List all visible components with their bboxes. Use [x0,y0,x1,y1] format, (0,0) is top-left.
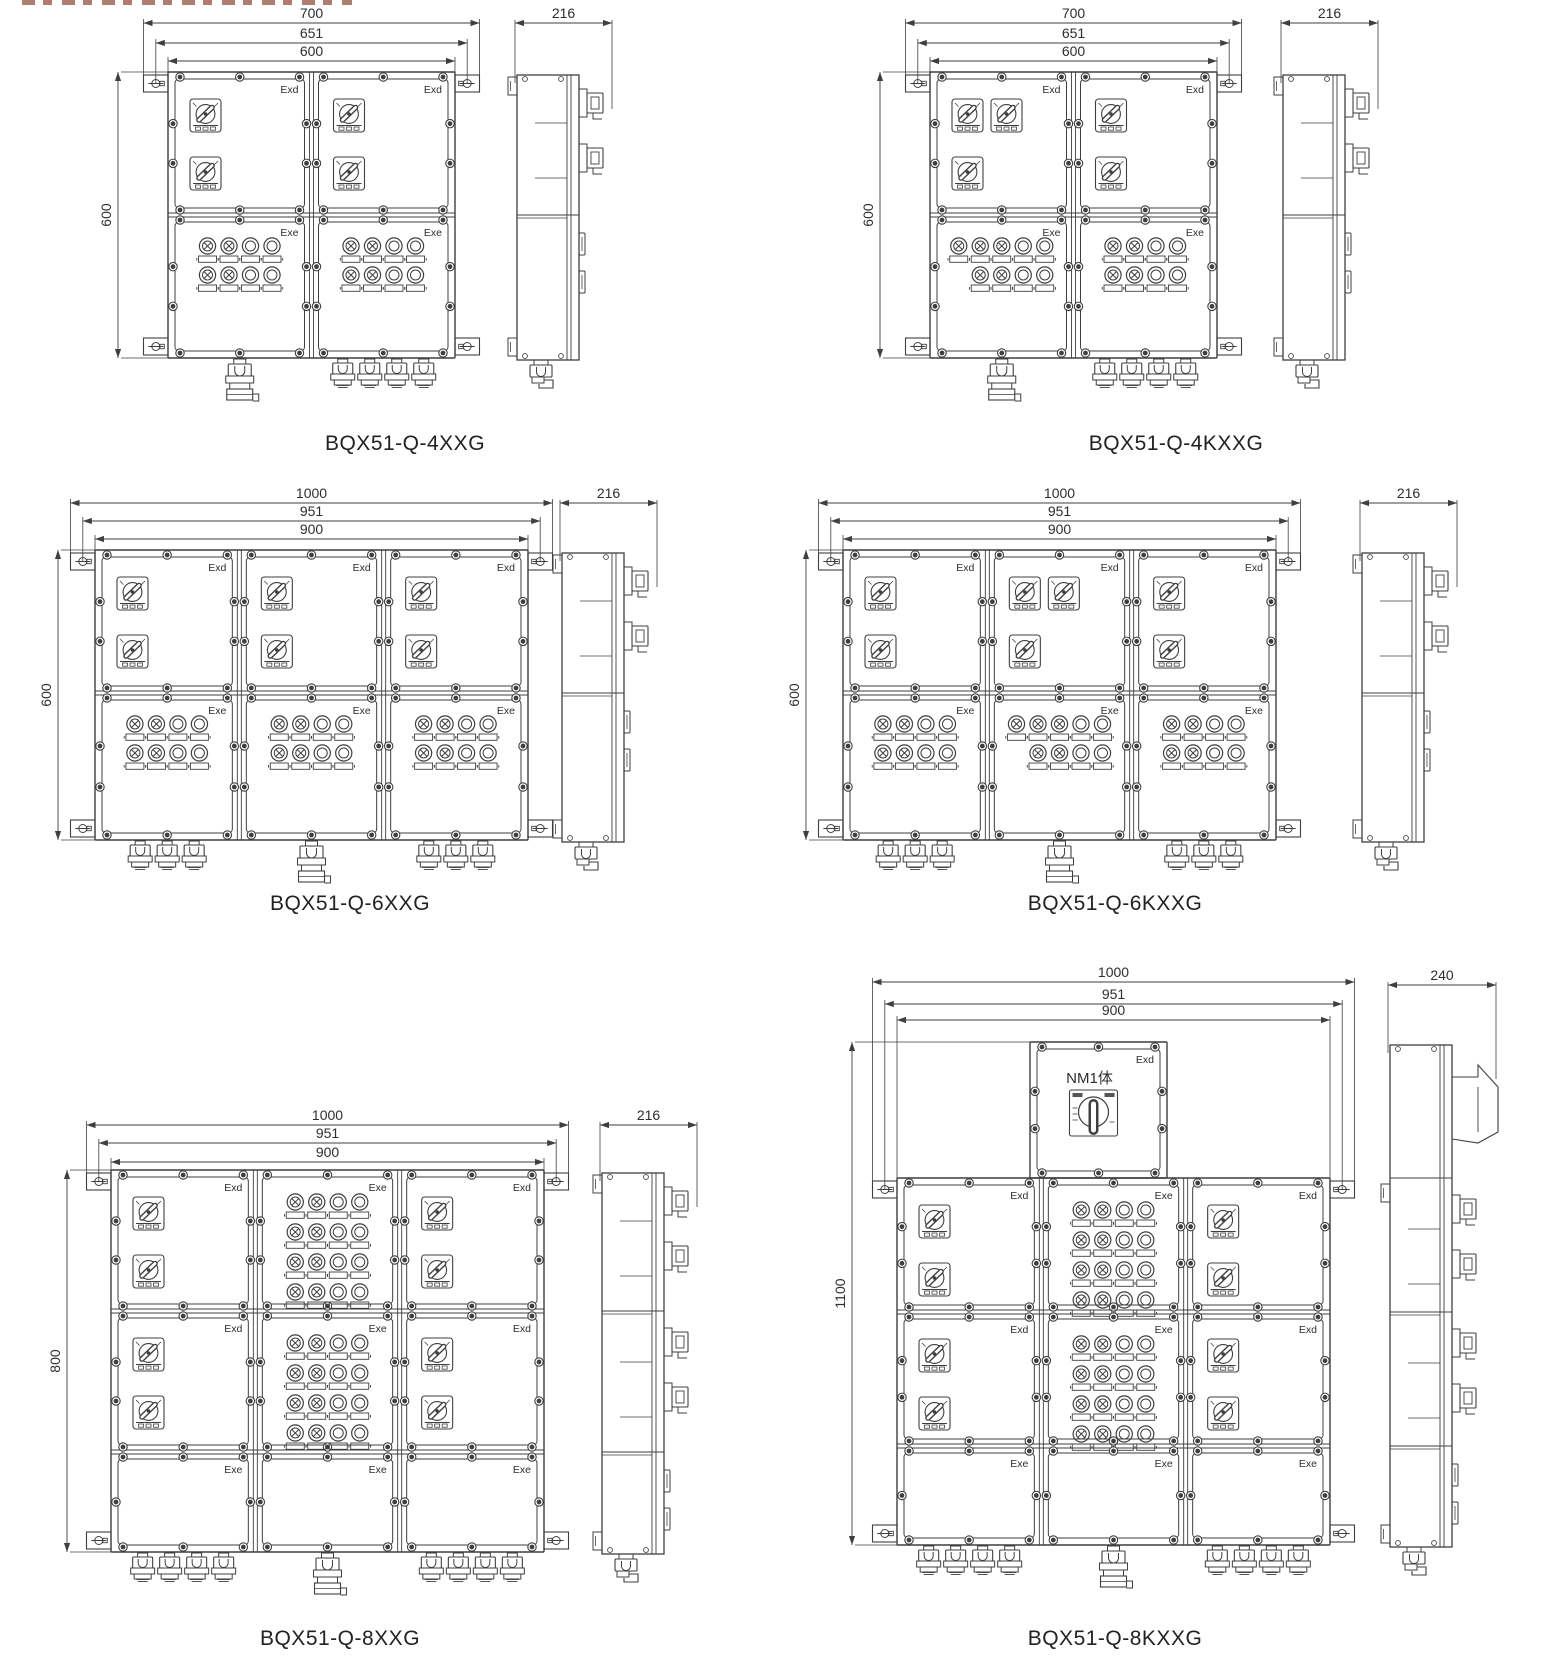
dimensions: 700651600600 [98,5,480,358]
latch-handle-icon [664,1187,688,1217]
dim-label: 600 [1062,43,1086,59]
cable-gland-icon [471,841,495,870]
indicator-light-icon [167,745,188,769]
indicator-light-crossed-icon [1071,1292,1092,1316]
indicator-light-icon [1204,716,1225,740]
cable-gland-icon [412,359,436,388]
indicator-light-crossed-icon [306,1395,327,1419]
dimension: 216 [1360,485,1457,506]
indicator-light-crossed-icon [1092,1232,1113,1256]
rotary-switch-icon [133,1396,164,1429]
protection-type-label: Exd [280,84,298,96]
dim-label: 600 [786,683,802,707]
indicator-light-icon [349,1284,370,1308]
indicator-light-crossed-icon [285,1395,306,1419]
cable-gland-icon [1093,359,1117,388]
rotary-switch-icon [1154,577,1185,610]
dim-label: 800 [47,1349,63,1373]
mounting-bracket [544,1532,569,1549]
indicator-light-crossed-icon [362,267,383,291]
cable-gland-icon [500,1553,524,1582]
cable-gland-icon [473,1553,497,1582]
latch-handle-icon [664,1328,688,1358]
indicator-light-icon [1034,267,1055,291]
indicator-light-icon [1204,745,1225,769]
protection-type-label: Exd [1010,1324,1028,1336]
compartment-exe: Exe [1074,216,1216,357]
compartment-exd: Exd [988,551,1131,692]
indicator-light-crossed-icon [285,1224,306,1248]
indicator-light-crossed-icon [894,745,915,769]
dim-label: 900 [1048,521,1072,537]
indicator-light-crossed-icon [1182,716,1203,740]
side-view: 240 [1381,967,1498,1575]
dim-label: 216 [1397,485,1421,501]
compartment-exe: Exe [844,694,987,839]
indicator-light-crossed-icon [1092,1366,1113,1390]
indicator-light-crossed-icon [1049,716,1070,740]
indicator-light-icon [333,745,354,769]
cable-gland-icon [1219,841,1243,870]
indicator-light-crossed-icon [434,745,455,769]
indicator-light-icon [1167,267,1188,291]
rotary-switch-icon [261,577,292,610]
diagram-bqx51-q-4xxg: ExdExdExeExe700651600600216 [98,5,612,401]
protection-type-label: Exe [1299,1458,1317,1470]
dim-label: 216 [637,1107,661,1123]
front-view: ExdExdExeExe [906,72,1242,358]
indicator-light-crossed-icon [269,716,290,740]
protection-type-label: Exe [1155,1324,1173,1336]
cable-gland-icon [903,841,927,870]
dimension: 900 [111,1144,544,1165]
indicator-light-crossed-icon [948,238,969,262]
rotary-switch-icon [133,1255,164,1288]
dim-label: 951 [1102,986,1126,1002]
indicator-light-crossed-icon [1092,1292,1113,1316]
rotary-switch-icon [991,99,1022,132]
latch-handle-icon [1452,1329,1476,1359]
indicator-light-crossed-icon [413,716,434,740]
indicator-light-icon [1092,716,1113,740]
protection-type-label: Exe [513,1464,531,1476]
dim-label: 216 [552,5,576,21]
dimension: 600 [786,550,809,840]
compartment-exd: Exd [96,551,239,692]
compartment-exe: Exe [96,694,239,839]
protection-type-label: Exe [369,1182,387,1194]
compartment-exd: Exd [240,551,383,692]
cable-gland-icon [1147,359,1171,388]
dimension: 600 [860,72,883,358]
protection-type-label: Exe [1010,1458,1028,1470]
rotary-switch-icon [422,1338,453,1371]
indicator-light-crossed-icon [285,1365,306,1389]
latch-handle-icon [579,144,603,174]
rotary-switch-icon [133,1197,164,1230]
indicator-light-crossed-icon [1006,716,1027,740]
rotary-switch-icon [1048,577,1079,610]
indicator-light-icon [333,716,354,740]
protection-type-label: Exd [1136,1054,1154,1066]
indicator-light-icon [1145,238,1166,262]
protection-type-label: Exd [224,1323,242,1335]
diagram-bqx51-q-6kxxg: ExdExdExdExeExeExe1000951900600216 [786,485,1457,883]
indicator-light-icon [1114,1336,1135,1360]
protection-type-label: Exd [424,84,442,96]
compartment-exd: Exd [931,73,1073,214]
latch-handle-icon [1452,1384,1476,1414]
compartment-exe: Exe [400,1453,543,1551]
latch-handle-icon [624,567,648,597]
indicator-light-crossed-icon [124,716,145,740]
latch-handle-icon [624,622,648,652]
latch-handle-icon [579,89,603,119]
compartment-exe: Exe [988,694,1131,839]
protection-type-label: Exd [224,1182,242,1194]
diagram-bqx51-q-8xxg: ExdExeExdExdExeExdExeExeExe1000951900800… [47,1107,697,1595]
indicator-light-icon [937,745,958,769]
protection-type-label: Exe [1155,1458,1173,1470]
diagram-bqx51-q-8kxxg: ExdExeExdExdExeExdExeExeExeExdNM1体100095… [832,964,1498,1588]
compartment-exd: Exd [112,1171,255,1310]
latch-handle-icon [1452,1250,1476,1280]
indicator-light-crossed-icon [872,745,893,769]
cable-gland-icon [1174,359,1198,388]
front-view: ExdExeExdExdExeExdExeExeExe [87,1170,569,1552]
cable-gland-row [917,1546,1311,1588]
rotary-switch-icon [865,635,896,668]
cable-gland-icon [128,841,152,870]
dimension: 216 [515,5,612,26]
indicator-light-icon [1135,1396,1156,1420]
dim-label: 600 [38,683,54,707]
cable-gland-icon [998,1546,1022,1575]
protection-type-label: Exe [224,1464,242,1476]
indicator-light-crossed-icon [1092,1202,1113,1226]
indicator-light-crossed-icon [991,238,1012,262]
cable-gland-row [131,1553,525,1595]
cable-gland-icon [417,841,441,870]
indicator-light-icon [405,238,426,262]
indicator-light-icon [1114,1426,1135,1450]
compartment-exd: Exd [312,73,454,214]
dimension: 600 [930,43,1217,64]
indicator-light-crossed-icon [1049,745,1070,769]
compartment-exd: Exd [384,551,527,692]
indicator-light-crossed-icon [306,1254,327,1278]
indicator-light-icon [937,716,958,740]
compartment-exd: Exd [169,73,311,214]
indicator-light-icon [1092,745,1113,769]
cable-gland-row [988,359,1198,401]
indicator-light-icon [312,716,333,740]
dim-label: 951 [1048,503,1072,519]
indicator-light-crossed-icon [290,716,311,740]
mounting-bracket [87,1532,112,1549]
mounting-bracket [144,338,169,355]
indicator-light-icon [1225,745,1246,769]
dimension: 900 [95,521,528,542]
indicator-light-crossed-icon [1071,1366,1092,1390]
dimension: 700 [906,5,1242,26]
main-breaker-switch-icon: NM1体 [1066,1070,1117,1136]
rotary-switch-icon [422,1197,453,1230]
mounting-bracket [906,338,931,355]
rotary-switch-icon [1208,1397,1239,1430]
dimension: 900 [897,1002,1330,1023]
dim-label: 900 [300,521,324,537]
indicator-light-icon [1114,1396,1135,1420]
latch-handle-icon [1345,144,1369,174]
rotary-switch-icon [919,1339,950,1372]
rotary-switch-icon [117,577,148,610]
compartment-exd: Exd [1186,1313,1329,1445]
cable-gland-icon [182,841,206,870]
indicator-light-crossed-icon [290,745,311,769]
indicator-light-icon [383,238,404,262]
compartment-exd: Exd [844,551,987,692]
indicator-light-icon [349,1365,370,1389]
indicator-light-icon [189,716,210,740]
dimension: 216 [600,1107,697,1128]
compartment-exd: Exd [898,1313,1041,1445]
protection-type-label: Exe [424,227,442,239]
cable-gland-icon [1205,1546,1229,1575]
indicator-light-icon [328,1254,349,1278]
rotary-switch-icon [133,1338,164,1371]
rotary-switch-icon [1009,577,1040,610]
indicator-light-crossed-icon [285,1335,306,1359]
cable-gland-icon [917,1546,941,1575]
indicator-light-icon [328,1395,349,1419]
mounting-bracket [1276,820,1301,837]
dimension: 951 [99,1125,556,1146]
indicator-light-icon [312,745,333,769]
dim-label: 651 [300,25,324,41]
rotary-switch-icon [1154,635,1185,668]
indicator-light-crossed-icon [306,1365,327,1389]
protection-type-label: Exe [369,1323,387,1335]
dim-label: 900 [316,1144,340,1160]
rotary-switch-icon [919,1205,950,1238]
rotary-switch-icon [1009,635,1040,668]
main-cable-gland-icon [1046,841,1079,883]
compartment-exe: Exe [312,216,454,357]
protection-type-label: Exe [1245,705,1263,717]
dim-label: 651 [1062,25,1086,41]
dimension: 900 [843,521,1276,542]
rotary-switch-icon [334,99,365,132]
indicator-light-crossed-icon [146,716,167,740]
cable-gland-icon [1232,1546,1256,1575]
indicator-light-icon [1135,1202,1156,1226]
indicator-light-icon [328,1365,349,1389]
dimension: 700 [144,5,480,26]
indicator-light-crossed-icon [970,267,991,291]
indicator-light-crossed-icon [362,238,383,262]
cable-gland-icon [446,1553,470,1582]
main-cable-gland-icon [298,841,331,883]
indicator-light-crossed-icon [197,238,218,262]
model-label: BQX51-Q-6XXG [190,892,510,918]
protection-type-label: Exd [1186,84,1204,96]
indicator-light-icon [349,1224,370,1248]
cable-gland-icon [131,1553,155,1582]
cable-gland-icon [876,841,900,870]
indicator-light-crossed-icon [285,1194,306,1218]
protection-type-label: Exe [1155,1190,1173,1202]
mounting-bracket [819,820,844,837]
indicator-light-icon [456,716,477,740]
indicator-light-crossed-icon [306,1224,327,1248]
side-view: 216 [508,5,612,388]
cable-gland-icon [944,1546,968,1575]
rotary-switch-icon [1096,99,1127,132]
rotary-switch-icon [865,577,896,610]
indicator-light-icon [1114,1202,1135,1226]
indicator-light-crossed-icon [1027,716,1048,740]
cable-gland-icon [158,1553,182,1582]
indicator-light-crossed-icon [1092,1396,1113,1420]
dim-label: 951 [316,1125,340,1141]
rotary-switch-icon [117,635,148,668]
compartment-exe: Exe [256,1312,399,1451]
rotary-switch-icon [952,157,983,190]
dim-label: 600 [860,203,876,227]
indicator-light-crossed-icon [285,1284,306,1308]
cable-gland-icon [419,1553,443,1582]
cable-gland-row [226,359,436,401]
dim-label: 216 [597,485,621,501]
indicator-light-icon [167,716,188,740]
dimension: 600 [38,550,61,840]
indicator-light-crossed-icon [1124,267,1145,291]
compartment-exd: Exd [1074,73,1216,214]
indicator-light-icon [477,745,498,769]
indicator-light-icon [477,716,498,740]
indicator-light-crossed-icon [146,745,167,769]
dimensions: 10009519001100 [832,964,1355,1545]
indicator-light-icon [240,238,261,262]
indicator-light-icon [1114,1262,1135,1286]
indicator-light-icon [1114,1232,1135,1256]
cable-gland-icon [1286,1546,1310,1575]
dimension: 216 [1281,5,1378,26]
protection-type-label: Exe [1042,227,1060,239]
protection-type-label: Exd [1299,1190,1317,1202]
protection-type-label: Exe [353,705,371,717]
dim-label: 1000 [1044,485,1075,501]
cable-gland-icon [971,1546,995,1575]
indicator-light-icon [1034,238,1055,262]
compartment-exe: Exe [1042,1313,1185,1451]
indicator-light-crossed-icon [1071,1232,1092,1256]
indicator-light-icon [349,1425,370,1449]
dimension: 1100 [832,1042,855,1545]
indicator-light-crossed-icon [269,745,290,769]
indicator-light-crossed-icon [1092,1426,1113,1450]
indicator-light-icon [915,745,936,769]
latch-handle-icon [1345,89,1369,119]
cable-gland-icon [331,359,355,388]
indicator-light-icon [456,745,477,769]
indicator-light-crossed-icon [1071,1336,1092,1360]
protection-type-label: Exe [1101,705,1119,717]
protection-type-label: Exd [513,1323,531,1335]
compartment-exd: Exd [400,1171,543,1310]
rotary-switch-icon [1208,1263,1239,1296]
diagram-bqx51-q-6xxg: ExdExdExdExeExeExe1000951900600216 [38,485,657,883]
rotary-switch-icon [422,1396,453,1429]
technical-drawing-canvas: ExdExdExeExe700651600600216ExdExdExeExe7… [0,0,1553,1662]
indicator-light-crossed-icon [1071,1426,1092,1450]
rotary-switch-icon [406,577,437,610]
indicator-light-icon [349,1395,370,1419]
cable-gland-icon [155,841,179,870]
indicator-light-crossed-icon [340,267,361,291]
indicator-light-crossed-icon [285,1254,306,1278]
dim-label: 1000 [296,485,327,501]
indicator-light-icon [1070,745,1091,769]
indicator-light-crossed-icon [1027,745,1048,769]
compartment-exe: Exe [898,1447,1041,1544]
compartment-exe: Exe [1042,1179,1185,1317]
protection-type-label: Exd [353,562,371,574]
dimension: 240 [1388,967,1496,988]
indicator-light-crossed-icon [991,267,1012,291]
mounting-bracket [873,1525,898,1542]
cable-gland-row [128,841,495,883]
indicator-light-icon [328,1335,349,1359]
cable-gland-icon [185,1553,209,1582]
side-view: 216 [1353,485,1457,870]
compartment-exe: Exe [256,1453,399,1551]
cable-gland-icon [212,1553,236,1582]
indicator-light-crossed-icon [197,267,218,291]
side-view: 216 [553,485,657,870]
front-view: ExdExeExdExdExeExdExeExeExeExdNM1体 [873,1042,1355,1545]
indicator-light-crossed-icon [413,745,434,769]
latch-handle-icon [664,1242,688,1272]
rotary-switch-icon [422,1255,453,1288]
protection-type-label: Exe [497,705,515,717]
protection-type-label: Exe [1186,227,1204,239]
rotary-switch-icon [406,635,437,668]
mounting-bracket [1217,338,1242,355]
dim-label: 240 [1430,967,1454,983]
mounting-bracket [71,820,96,837]
indicator-light-icon [1135,1366,1156,1390]
indicator-light-icon [1013,267,1034,291]
cable-gland-icon [1165,841,1189,870]
dimensions: 1000951900600 [38,485,553,840]
compartment-exd: Exd [1186,1179,1329,1311]
indicator-light-icon [1135,1292,1156,1316]
indicator-light-icon [328,1194,349,1218]
compartment-exd: Exd [1132,551,1275,692]
protection-type-label: Exe [369,1464,387,1476]
rotary-switch-icon [190,157,221,190]
protection-type-label: Exd [956,562,974,574]
front-view: ExdExdExdExeExeExe [71,550,553,840]
model-label: BQX51-Q-8KXXG [955,1627,1275,1653]
indicator-light-icon [328,1224,349,1248]
protection-type-label: Exd [1010,1190,1028,1202]
compartment-exe: Exe [256,1171,399,1310]
drawing-sheet: ExdExdExeExe700651600600216ExdExdExeExe7… [0,0,1553,1662]
indicator-light-crossed-icon [285,1425,306,1449]
